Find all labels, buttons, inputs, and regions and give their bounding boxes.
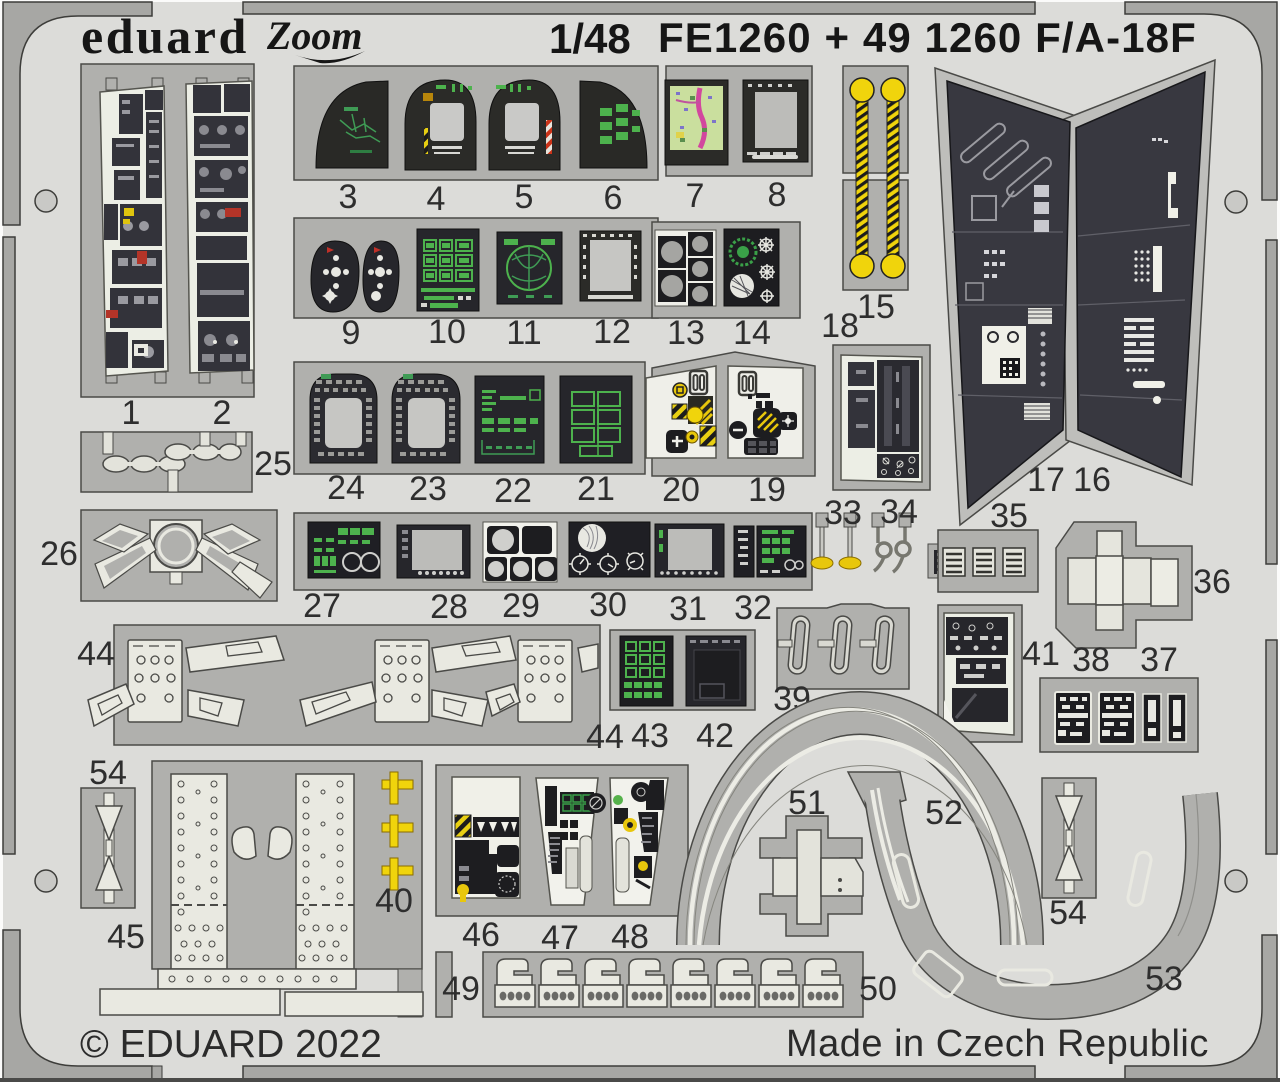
- svg-text:16: 16: [1073, 461, 1111, 499]
- svg-text:28: 28: [430, 588, 468, 626]
- svg-text:30: 30: [589, 586, 627, 624]
- svg-text:FE1260 + 49 1260 F/A-18F: FE1260 + 49 1260 F/A-18F: [658, 14, 1197, 61]
- svg-text:44: 44: [586, 718, 624, 756]
- svg-text:9: 9: [342, 314, 361, 352]
- svg-text:54: 54: [1049, 894, 1087, 932]
- svg-text:25: 25: [254, 445, 292, 483]
- svg-text:8: 8: [768, 176, 787, 214]
- svg-text:20: 20: [662, 471, 700, 509]
- svg-text:Zoom: Zoom: [266, 13, 363, 58]
- svg-text:32: 32: [734, 589, 772, 627]
- svg-text:Made in Czech Republic: Made in Czech Republic: [786, 1023, 1209, 1065]
- svg-text:18: 18: [821, 307, 859, 345]
- svg-text:26: 26: [40, 535, 78, 573]
- svg-text:12: 12: [593, 313, 631, 351]
- svg-text:36: 36: [1193, 563, 1231, 601]
- svg-text:46: 46: [462, 916, 500, 954]
- svg-text:40: 40: [375, 882, 413, 920]
- svg-text:52: 52: [925, 794, 963, 832]
- svg-text:10: 10: [428, 313, 466, 351]
- svg-text:13: 13: [667, 314, 705, 352]
- svg-text:14: 14: [733, 314, 771, 352]
- svg-text:38: 38: [1072, 641, 1110, 679]
- svg-text:22: 22: [494, 472, 532, 510]
- svg-text:27: 27: [303, 587, 341, 625]
- svg-text:42: 42: [696, 717, 734, 755]
- svg-text:33: 33: [824, 494, 862, 532]
- svg-text:3: 3: [339, 178, 358, 216]
- svg-text:44: 44: [77, 635, 115, 673]
- svg-text:29: 29: [502, 587, 540, 625]
- svg-text:eduard: eduard: [81, 8, 249, 64]
- svg-text:© EDUARD 2022: © EDUARD 2022: [80, 1023, 382, 1066]
- svg-text:5: 5: [515, 178, 534, 216]
- svg-text:1: 1: [122, 394, 141, 432]
- svg-text:51: 51: [788, 784, 826, 822]
- svg-text:34: 34: [880, 493, 918, 531]
- svg-text:19: 19: [748, 471, 786, 509]
- svg-text:17: 17: [1027, 461, 1065, 499]
- svg-text:49: 49: [442, 970, 480, 1008]
- svg-text:50: 50: [859, 970, 897, 1008]
- svg-text:6: 6: [604, 179, 623, 217]
- svg-text:21: 21: [577, 470, 615, 508]
- svg-text:24: 24: [327, 469, 365, 507]
- svg-text:11: 11: [506, 314, 541, 352]
- svg-text:15: 15: [857, 288, 895, 326]
- svg-text:45: 45: [107, 918, 145, 956]
- svg-text:48: 48: [611, 918, 649, 956]
- svg-text:37: 37: [1140, 641, 1178, 679]
- svg-text:23: 23: [409, 470, 447, 508]
- svg-text:2: 2: [213, 394, 232, 432]
- svg-text:7: 7: [686, 177, 705, 215]
- svg-text:35: 35: [990, 497, 1028, 535]
- svg-text:43: 43: [631, 717, 669, 755]
- svg-text:53: 53: [1145, 960, 1183, 998]
- svg-text:54: 54: [89, 754, 127, 792]
- svg-text:41: 41: [1022, 635, 1060, 673]
- svg-text:31: 31: [669, 590, 707, 628]
- svg-text:1/48: 1/48: [549, 15, 631, 62]
- svg-text:4: 4: [427, 180, 446, 218]
